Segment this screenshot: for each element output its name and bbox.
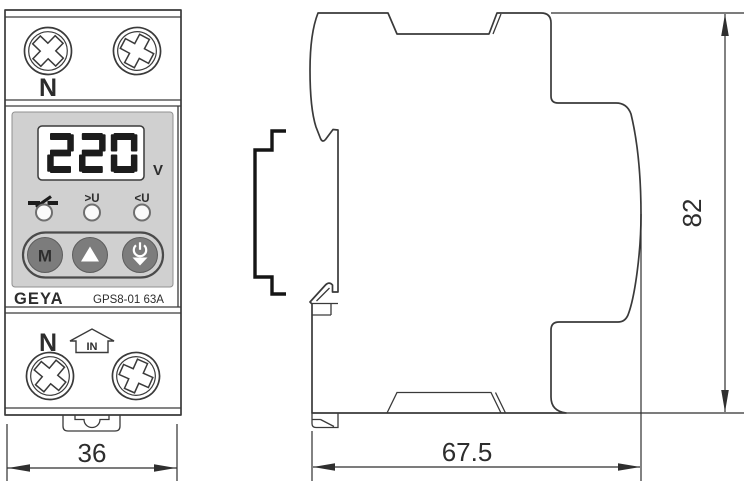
model-label: GPS8-01 63A — [93, 294, 164, 306]
din-clip-tab — [63, 415, 120, 431]
input-label: IN — [87, 341, 98, 353]
technical-drawing-voltage-protector: N V >U <U M — [0, 0, 750, 490]
side-body-outline — [310, 13, 641, 413]
power-down-button — [123, 238, 158, 273]
under-voltage-led — [134, 205, 150, 221]
din-clip-notch — [75, 415, 109, 428]
under-voltage-label: <U — [134, 193, 149, 205]
over-voltage-led — [84, 205, 100, 221]
brand-logo: GEYA — [14, 290, 63, 308]
drawing-canvas: N V >U <U M — [0, 0, 750, 490]
din-rail-profile-icon — [255, 131, 286, 294]
mode-button: M — [28, 238, 63, 273]
width-dimension-value: 36 — [78, 438, 107, 468]
mode-button-label: M — [38, 247, 52, 266]
width-dimension: 36 — [7, 424, 177, 481]
side-view: 82 67.5 — [255, 13, 744, 481]
front-view: N V >U <U M — [5, 10, 181, 481]
top-terminal-label: N — [39, 74, 57, 102]
status-led — [36, 205, 52, 221]
over-voltage-label: >U — [84, 193, 99, 205]
depth-dimension-value: 67.5 — [442, 437, 493, 467]
height-dimension-value: 82 — [677, 199, 707, 228]
voltage-unit-label: V — [153, 162, 163, 179]
up-button — [73, 238, 108, 273]
side-clip-tab — [312, 413, 338, 428]
